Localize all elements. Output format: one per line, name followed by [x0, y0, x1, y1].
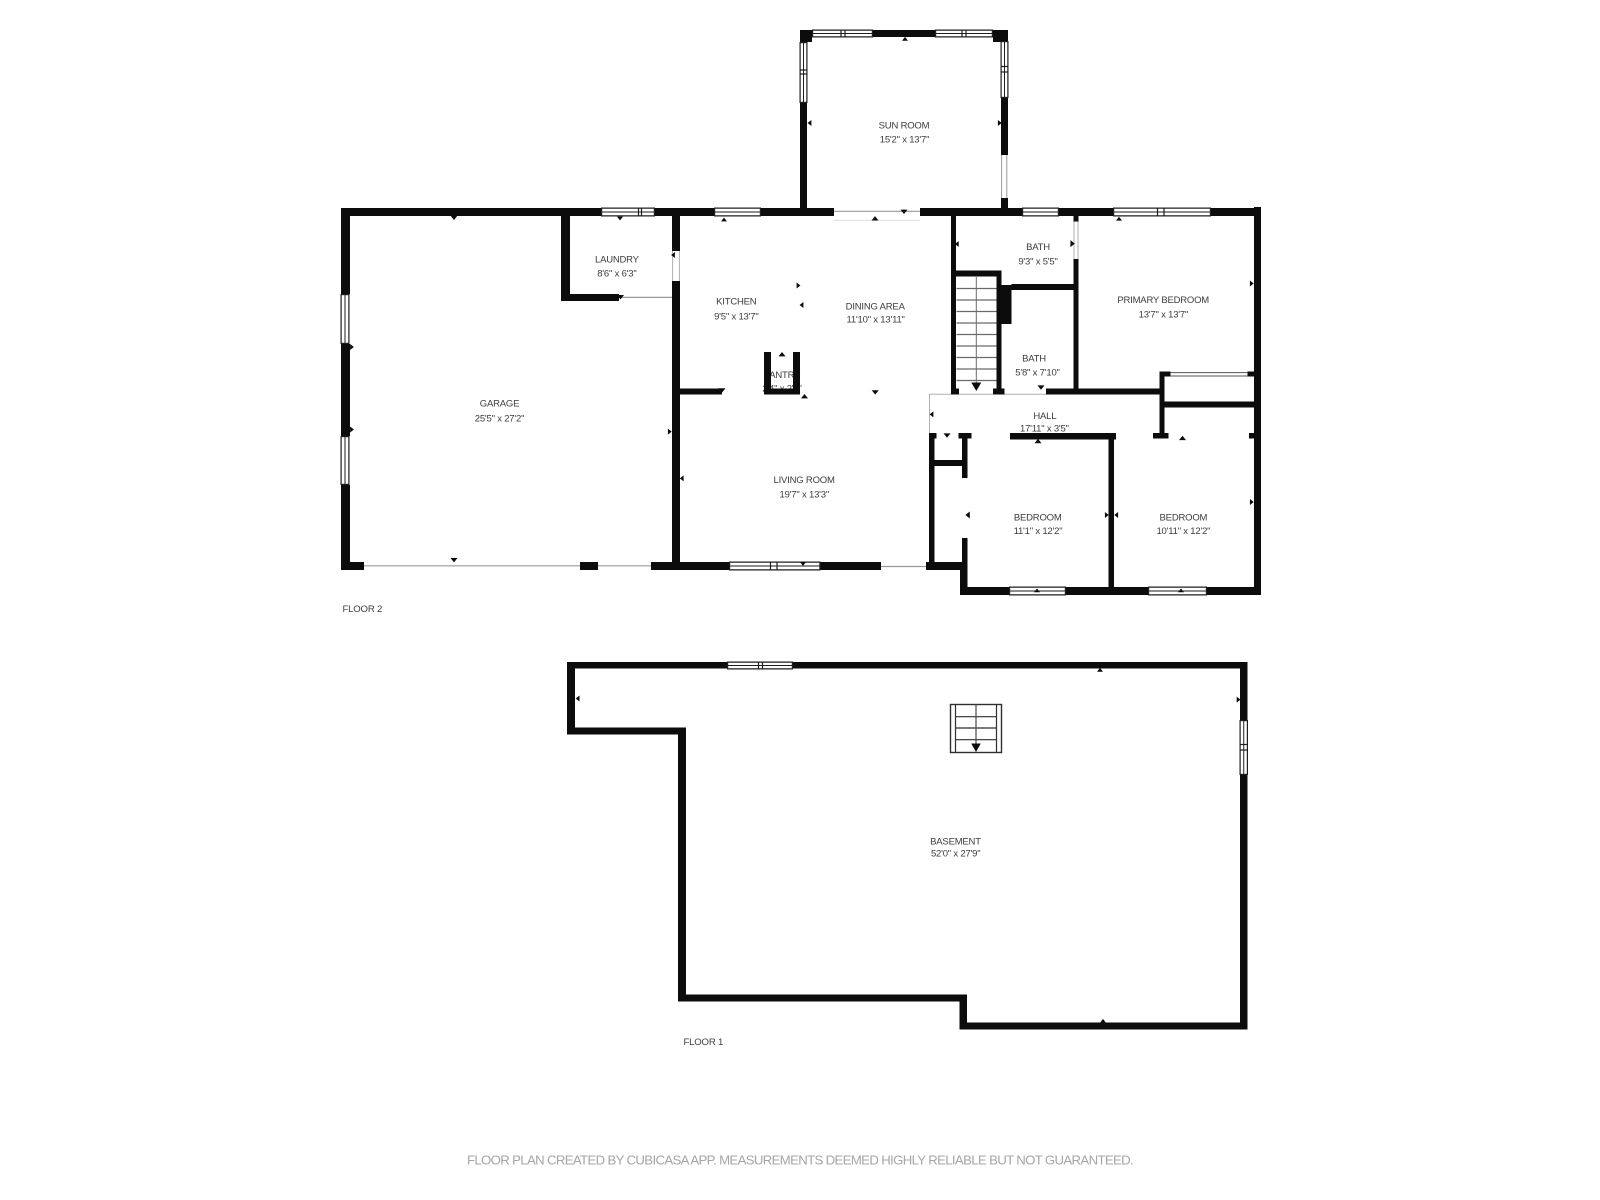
svg-text:5'8" x 7'10": 5'8" x 7'10" [1015, 368, 1059, 379]
svg-text:BEDROOM: BEDROOM [1160, 513, 1208, 524]
svg-text:SUN ROOM: SUN ROOM [879, 121, 930, 132]
svg-text:9'5" x 13'7": 9'5" x 13'7" [714, 311, 758, 322]
svg-text:52'0" x 27'9": 52'0" x 27'9" [931, 849, 981, 860]
svg-text:BEDROOM: BEDROOM [1014, 513, 1062, 524]
svg-text:17'11" x 3'5": 17'11" x 3'5" [1020, 424, 1069, 435]
svg-text:25'5" x 27'2": 25'5" x 27'2" [475, 414, 525, 425]
svg-text:BASEMENT: BASEMENT [930, 836, 981, 847]
svg-text:8'6" x 6'3": 8'6" x 6'3" [597, 268, 636, 279]
svg-text:PRIMARY BEDROOM: PRIMARY BEDROOM [1117, 295, 1209, 306]
svg-text:DINING AREA: DINING AREA [846, 302, 906, 313]
svg-text:19'7" x 13'3": 19'7" x 13'3" [780, 490, 830, 501]
svg-text:KITCHEN: KITCHEN [716, 297, 757, 308]
svg-text:13'7" x 13'7": 13'7" x 13'7" [1139, 310, 1189, 321]
svg-text:15'2" x 13'7": 15'2" x 13'7" [880, 135, 930, 146]
svg-text:FLOOR 1: FLOOR 1 [684, 1037, 724, 1048]
svg-text:BATH: BATH [1022, 354, 1046, 365]
svg-text:FLOOR 2: FLOOR 2 [343, 604, 383, 615]
svg-text:FLOOR PLAN CREATED BY CUBICASA: FLOOR PLAN CREATED BY CUBICASA APP. MEAS… [467, 1153, 1133, 1168]
svg-text:HALL: HALL [1033, 411, 1056, 422]
svg-text:LAUNDRY: LAUNDRY [595, 254, 640, 265]
svg-text:11'1" x 12'2": 11'1" x 12'2" [1014, 526, 1063, 537]
svg-text:GARAGE: GARAGE [480, 399, 519, 410]
svg-text:LIVING ROOM: LIVING ROOM [774, 475, 835, 486]
svg-text:11'10" x 13'11": 11'10" x 13'11" [846, 315, 904, 326]
svg-text:BATH: BATH [1026, 242, 1050, 253]
svg-text:9'3" x 5'5": 9'3" x 5'5" [1018, 257, 1057, 268]
svg-text:10'11" x 12'2": 10'11" x 12'2" [1156, 526, 1210, 537]
